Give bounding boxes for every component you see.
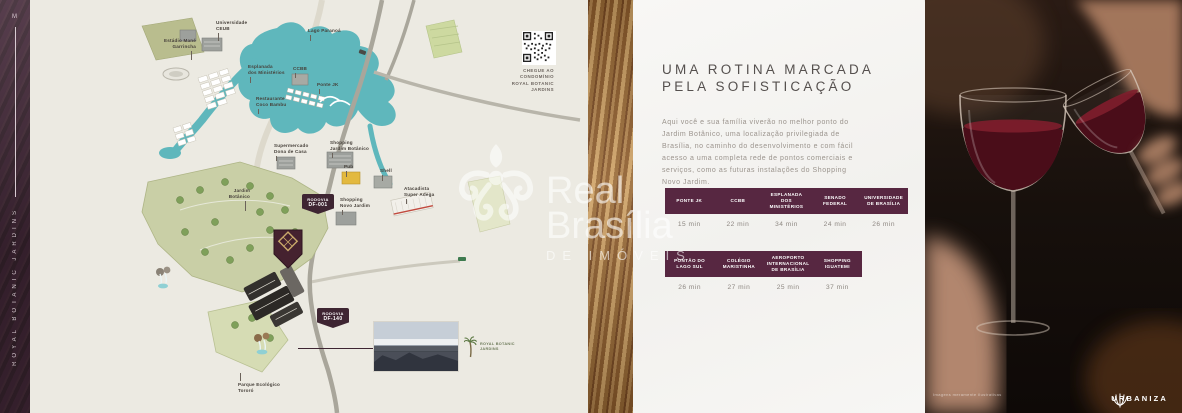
travel-times-table-1: PONTE JK CCBB ESPLANADA DOS MINISTÉRIOS … <box>665 188 908 228</box>
map-label-shopping-novo-jardim: Shopping Novo Jardim <box>340 197 370 215</box>
table-header-cell: UNIVERSIDADE DE BRASÍLIA <box>859 188 908 214</box>
map-label-ccbb: CCBB <box>293 66 307 78</box>
table-2-values: 26 min 27 min 25 min 37 min <box>665 277 862 291</box>
map-label-shopping-jardim-botanico: Shopping Jardim Botânico <box>330 140 369 158</box>
table-value-cell: 34 min <box>762 214 811 228</box>
map-label-estadio-mane-garrincha: Estádio Mané Garrincha <box>146 38 196 60</box>
urbaniza-logo-icon <box>1111 392 1129 409</box>
section-paragraph: Aqui você e sua família viverão no melho… <box>662 117 858 189</box>
qr-code-pattern <box>523 32 553 62</box>
qr-code <box>522 31 556 65</box>
table-value-cell: 15 min <box>665 214 714 228</box>
table-value-cell: 24 min <box>811 214 860 228</box>
table-header-cell: COLÉGIO MARISTINHA <box>714 251 763 277</box>
map-label-jardim-botanico: Jardim Botânico <box>214 188 250 211</box>
table-2-header: PONTÃO DO LAGO SUL COLÉGIO MARISTINHA AE… <box>665 251 862 277</box>
project-logo: ROYAL BOTANIC JARDINS <box>464 336 515 358</box>
palm-tree-icon <box>464 336 477 358</box>
gate-beam <box>374 339 458 345</box>
wine-photo-art <box>925 0 1182 413</box>
table-header-cell: AEROPORTO INTERNACIONAL DE BRASÍLIA <box>764 251 813 277</box>
table-value-cell: 37 min <box>813 277 862 291</box>
vertical-divider-line <box>15 27 16 197</box>
table-header-cell: PONTE JK <box>665 188 714 214</box>
map-label-esplanada: Esplanada dos Ministérios <box>248 64 285 83</box>
gate-silhouette <box>374 348 458 371</box>
table-header-cell: CCBB <box>714 188 763 214</box>
vertical-title: M ROYAL BOTANIC JARDINS <box>0 14 30 403</box>
location-map: Universidade CEUB Estádio Mané Garrincha… <box>30 0 588 413</box>
map-label-atacadista-super-adega: Atacadista Super Adega <box>404 186 434 204</box>
table-1-values: 15 min 22 min 34 min 24 min 26 min <box>665 214 908 228</box>
table-value-cell: 27 min <box>714 277 763 291</box>
wine-toast-photo: Imagens meramente ilustrativas URBANIZA <box>925 0 1182 413</box>
map-label-lago-paranoa: Lago Paranoá <box>308 28 341 41</box>
map-label-shell: Shell <box>380 168 392 181</box>
photo-caption: Imagens meramente ilustrativas <box>933 392 1002 397</box>
map-label-pub: Pub <box>344 164 353 177</box>
table-value-cell: 26 min <box>859 214 908 228</box>
entrance-photo <box>374 322 458 371</box>
map-label-ponte-jk: Ponte JK <box>317 82 339 94</box>
vertical-title-text: ROYAL BOTANIC JARDINS <box>12 207 18 366</box>
table-value-cell: 22 min <box>714 214 763 228</box>
section-title: UMA ROTINA MARCADA PELA SOFISTICAÇÃO <box>662 62 874 95</box>
project-logo-text: ROYAL BOTANIC JARDINS <box>480 342 515 351</box>
brochure-page: M ROYAL BOTANIC JARDINS <box>0 0 1182 413</box>
wood-texture-divider <box>588 0 633 413</box>
leaf-photo-strip: M ROYAL BOTANIC JARDINS <box>0 0 30 413</box>
map-label-universidade-ceub: Universidade CEUB <box>216 20 247 41</box>
developer-brand: URBANIZA <box>1111 392 1168 403</box>
map-label-supermercado-dona-de-casa: Supermercado Dona de Casa <box>274 143 309 161</box>
table-header-cell: SENADO FEDERAL <box>811 188 860 214</box>
table-header-cell: SHOPPING IGUATEMI <box>813 251 862 277</box>
travel-times-table-2: PONTÃO DO LAGO SUL COLÉGIO MARISTINHA AE… <box>665 251 862 291</box>
map-label-parque-ecologico-tororo: Parque Ecológico Tororó <box>238 372 280 394</box>
qr-caption: CHEGUE AO CONDOMÍNIO ROYAL BOTANIC JARDI… <box>492 68 554 94</box>
pin-to-photo-connector <box>298 348 376 349</box>
table-header-cell: ESPLANADA DOS MINISTÉRIOS <box>762 188 811 214</box>
table-1-header: PONTE JK CCBB ESPLANADA DOS MINISTÉRIOS … <box>665 188 908 214</box>
map-label-coco-bambu: Restaurante Coco Bambu <box>256 96 286 114</box>
table-value-cell: 26 min <box>665 277 714 291</box>
content-panel: UMA ROTINA MARCADA PELA SOFISTICAÇÃO Aqu… <box>633 0 925 413</box>
table-value-cell: 25 min <box>764 277 813 291</box>
vertical-title-letter: M <box>12 14 18 20</box>
table-header-cell: PONTÃO DO LAGO SUL <box>665 251 714 277</box>
